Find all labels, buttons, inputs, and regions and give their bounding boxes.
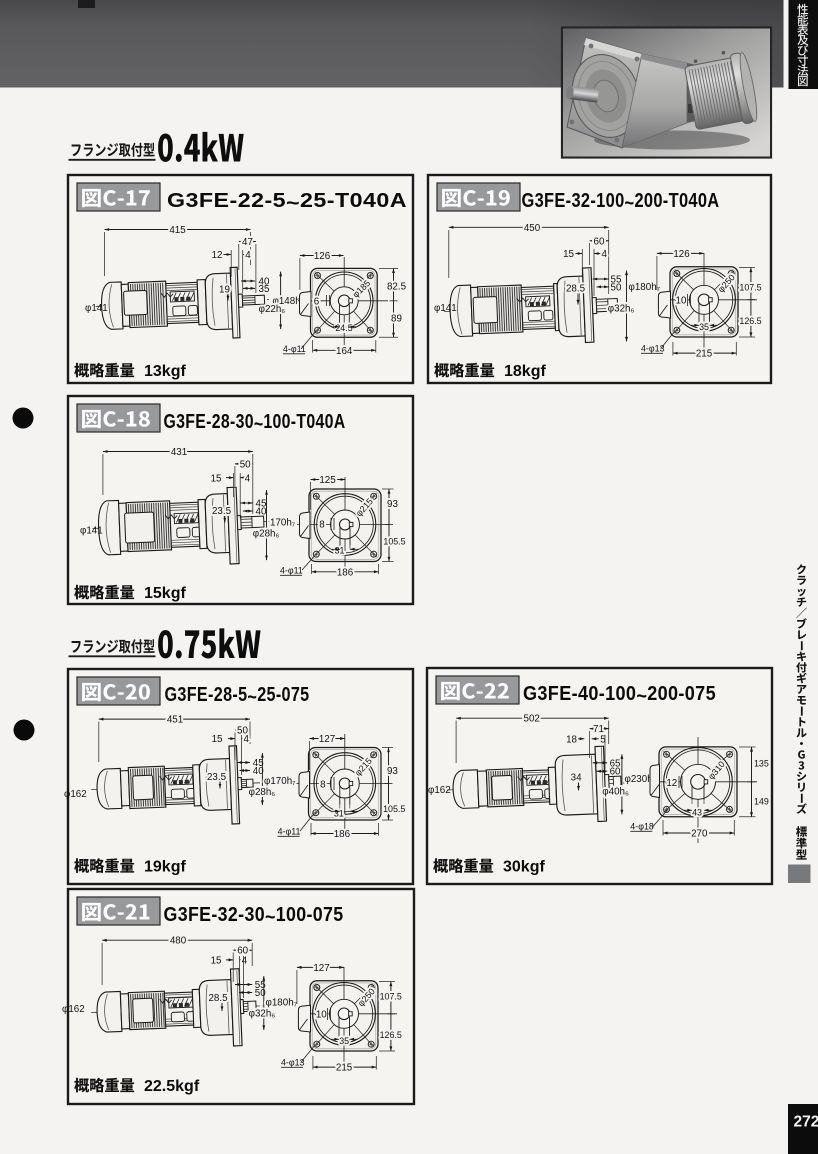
svg-text:107.5: 107.5	[739, 283, 761, 293]
svg-text:15kgf: 15kgf	[144, 585, 186, 602]
svg-text:170h₇: 170h₇	[270, 518, 296, 529]
svg-text:47: 47	[242, 237, 253, 248]
svg-text:127: 127	[313, 963, 329, 974]
svg-text:4: 4	[245, 250, 251, 261]
svg-text:φ141: φ141	[434, 303, 457, 314]
svg-text:G3FE-28-30~100-T040A: G3FE-28-30~100-T040A	[164, 410, 346, 436]
svg-text:G3FE-28-5~25-075: G3FE-28-5~25-075	[165, 683, 310, 709]
svg-text:19kgf: 19kgf	[144, 859, 186, 876]
svg-text:35: 35	[339, 1036, 349, 1046]
svg-text:8: 8	[320, 779, 326, 790]
svg-text:φ141: φ141	[85, 303, 108, 314]
svg-text:415: 415	[169, 225, 186, 236]
svg-text:107.5: 107.5	[380, 992, 402, 1002]
svg-text:18kgf: 18kgf	[504, 363, 546, 380]
svg-text:50: 50	[240, 459, 251, 470]
svg-text:G3FE-32-30~100-075: G3FE-32-30~100-075	[164, 903, 344, 929]
svg-text:15: 15	[563, 249, 574, 260]
svg-text:93: 93	[387, 499, 398, 510]
svg-text:43: 43	[692, 808, 702, 818]
svg-text:23.5: 23.5	[212, 506, 232, 517]
svg-text:149: 149	[754, 797, 769, 807]
svg-text:450: 450	[524, 223, 541, 234]
svg-text:28.5: 28.5	[566, 284, 586, 295]
svg-text:φ28h₆: φ28h₆	[249, 787, 276, 798]
svg-text:15: 15	[211, 473, 222, 484]
svg-text:24.5: 24.5	[335, 323, 352, 333]
svg-text:480: 480	[170, 936, 187, 947]
svg-text:19: 19	[219, 285, 230, 296]
svg-text:30kgf: 30kgf	[503, 859, 545, 876]
svg-text:10: 10	[316, 1009, 327, 1020]
svg-text:4-φ11: 4-φ11	[278, 827, 301, 837]
svg-text:φ32h₆: φ32h₆	[249, 1009, 276, 1020]
svg-text:82.5: 82.5	[387, 282, 407, 293]
svg-text:135: 135	[754, 759, 769, 769]
svg-text:φ180h₇: φ180h₇	[629, 282, 661, 293]
svg-text:40: 40	[256, 507, 267, 518]
svg-text:10: 10	[676, 296, 687, 307]
svg-text:215: 215	[696, 349, 713, 360]
svg-text:126: 126	[673, 249, 690, 260]
svg-text:93: 93	[387, 766, 398, 777]
svg-text:186: 186	[334, 829, 351, 840]
svg-text:4-φ11: 4-φ11	[280, 566, 303, 576]
svg-text:φ180h₇: φ180h₇	[266, 998, 298, 1009]
svg-text:4-φ11: 4-φ11	[283, 344, 306, 354]
svg-text:431: 431	[171, 447, 187, 458]
svg-text:270: 270	[691, 829, 708, 840]
svg-text:4-φ18: 4-φ18	[630, 822, 654, 832]
svg-text:12: 12	[666, 778, 677, 789]
svg-text:13kgf: 13kgf	[144, 363, 186, 380]
svg-text:8: 8	[319, 520, 325, 531]
svg-text:35: 35	[699, 322, 709, 332]
svg-text:4: 4	[245, 473, 251, 484]
svg-text:φ32h₆: φ32h₆	[608, 304, 635, 315]
svg-text:105.5: 105.5	[383, 804, 405, 814]
svg-text:89: 89	[391, 314, 402, 325]
svg-text:4: 4	[242, 955, 248, 966]
svg-text:6: 6	[314, 297, 320, 308]
svg-text:34: 34	[571, 772, 582, 783]
svg-text:126: 126	[314, 251, 331, 262]
svg-text:50: 50	[611, 282, 622, 293]
svg-text:451: 451	[167, 715, 183, 726]
svg-text:215: 215	[336, 1063, 353, 1074]
svg-text:125: 125	[319, 475, 336, 486]
svg-text:127: 127	[319, 734, 335, 745]
svg-text:15: 15	[211, 955, 222, 966]
svg-text:60: 60	[610, 767, 621, 778]
svg-text:G3FE-40-100~200-075: G3FE-40-100~200-075	[523, 682, 716, 708]
svg-text:126.5: 126.5	[739, 316, 761, 326]
svg-text:φ162: φ162	[64, 789, 87, 800]
svg-text:G3FE-32-100~200-T040A: G3FE-32-100~200-T040A	[522, 189, 720, 215]
svg-text:5: 5	[600, 734, 606, 745]
svg-text:φ162: φ162	[62, 1004, 85, 1015]
svg-text:28.5: 28.5	[208, 993, 228, 1004]
svg-text:18: 18	[566, 734, 577, 745]
svg-text:4: 4	[602, 249, 608, 260]
svg-text:35: 35	[259, 284, 270, 295]
svg-text:502: 502	[524, 714, 540, 725]
svg-text:105.5: 105.5	[383, 537, 405, 547]
svg-text:φ40h₆: φ40h₆	[602, 787, 629, 798]
svg-text:126.5: 126.5	[380, 1030, 402, 1040]
svg-text:164: 164	[336, 346, 353, 357]
svg-text:272: 272	[794, 1114, 818, 1131]
svg-text:φ141: φ141	[80, 526, 103, 537]
svg-text:φ162: φ162	[428, 785, 451, 796]
svg-text:186: 186	[337, 567, 354, 578]
svg-text:22.5kgf: 22.5kgf	[144, 1078, 200, 1095]
svg-text:φ28h₆: φ28h₆	[253, 529, 280, 540]
svg-text:4: 4	[244, 734, 250, 745]
svg-text:12: 12	[212, 250, 223, 261]
svg-text:φ170h₇: φ170h₇	[264, 776, 296, 787]
svg-text:23.5: 23.5	[207, 772, 227, 783]
svg-text:G3FE-22-5~25-T040A: G3FE-22-5~25-T040A	[167, 189, 407, 215]
svg-text:15: 15	[212, 734, 223, 745]
svg-text:60: 60	[594, 236, 605, 247]
svg-text:φ22h₆: φ22h₆	[259, 304, 286, 315]
